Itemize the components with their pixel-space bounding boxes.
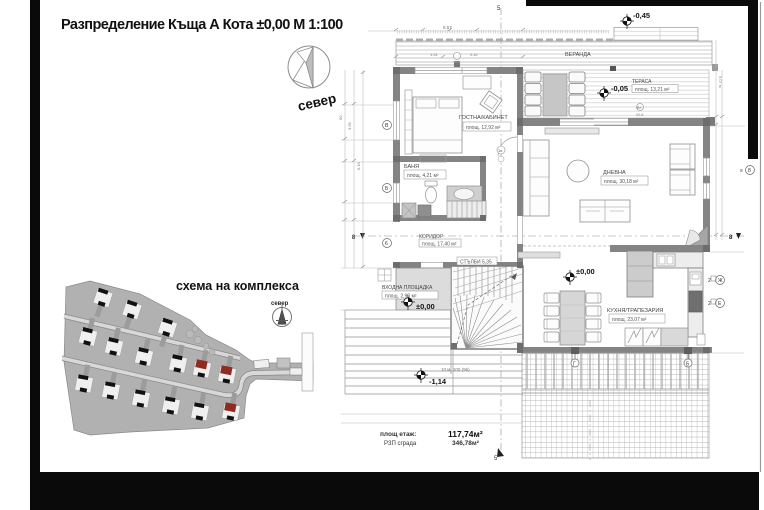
svg-text:2: 2 [708,301,711,307]
svg-text:площ етаж:: площ етаж: [380,431,416,438]
svg-text:2.42: 2.42 [470,52,479,57]
svg-text:КУХНЯ/ТРАПЕЗАРИЯ: КУХНЯ/ТРАПЕЗАРИЯ [607,308,663,314]
svg-text:-1,14: -1,14 [429,377,447,386]
svg-text:ВХОДНА ПЛОЩАДКА: ВХОДНА ПЛОЩАДКА [382,285,433,291]
svg-text:ДНЕВНА: ДНЕВНА [603,170,626,176]
svg-text:Г: Г [573,362,576,368]
svg-text:6.15: 6.15 [356,161,361,170]
svg-text:схема на комплекса: схема на комплекса [176,279,300,293]
svg-text:6: 6 [385,241,388,247]
svg-text:площ. 2,90 м²: площ. 2,90 м² [385,294,417,300]
svg-text:ВЕРАНДА: ВЕРАНДА [565,52,591,58]
svg-text:Разпределение Къща А Кота ±0,0: Разпределение Къща А Кота ±0,00 М 1:100 [61,17,343,33]
svg-text:площ. 12,92 м²: площ. 12,92 м² [466,125,501,131]
svg-text:ГОСТНА/КАБИНЕТ: ГОСТНА/КАБИНЕТ [459,115,508,121]
svg-text:8: 8 [748,168,751,174]
svg-text:9.07 м: 9.07 м [718,76,723,88]
svg-text:СТЪЛБИ 5,35: СТЪЛБИ 5,35 [460,260,492,266]
svg-text:10 м. 100 (96): 10 м. 100 (96) [441,367,470,372]
svg-text:±0,00: ±0,00 [416,302,435,311]
svg-text:1в: 1в [498,148,502,153]
svg-text:север: север [271,301,289,307]
svg-text:площ. 30,18 м²: площ. 30,18 м² [604,179,639,185]
svg-text:РЗП сграда: РЗП сграда [384,441,417,447]
svg-text:346,78м²: 346,78м² [452,440,480,447]
svg-text:-0,45: -0,45 [633,11,650,20]
svg-text:ТЕРАСА: ТЕРАСА [632,79,652,85]
svg-text:±0,00: ±0,00 [576,267,595,276]
svg-text:90: 90 [338,115,343,120]
svg-text:Ж: Ж [718,278,723,284]
svg-text:площ. 17,40 м²: площ. 17,40 м² [422,242,457,248]
svg-text:≡: ≡ [740,168,743,174]
svg-text:3.55: 3.55 [347,121,352,130]
svg-text:БАНЯ: БАНЯ [404,164,419,170]
svg-text:117,74м²: 117,74м² [448,429,483,439]
svg-text:1.51: 1.51 [430,52,439,57]
svg-text:-0,05: -0,05 [611,84,628,93]
svg-text:площ. 23,07 м²: площ. 23,07 м² [612,317,647,323]
svg-text:2: 2 [708,278,711,284]
svg-text:площ. 4,21 м²: площ. 4,21 м² [407,173,439,179]
svg-text:площ. 13,21 м²: площ. 13,21 м² [635,87,670,93]
svg-text:92.8: 92.8 [636,113,643,117]
svg-text:8.57: 8.57 [443,25,452,30]
svg-text:В+: В+ [637,105,643,110]
